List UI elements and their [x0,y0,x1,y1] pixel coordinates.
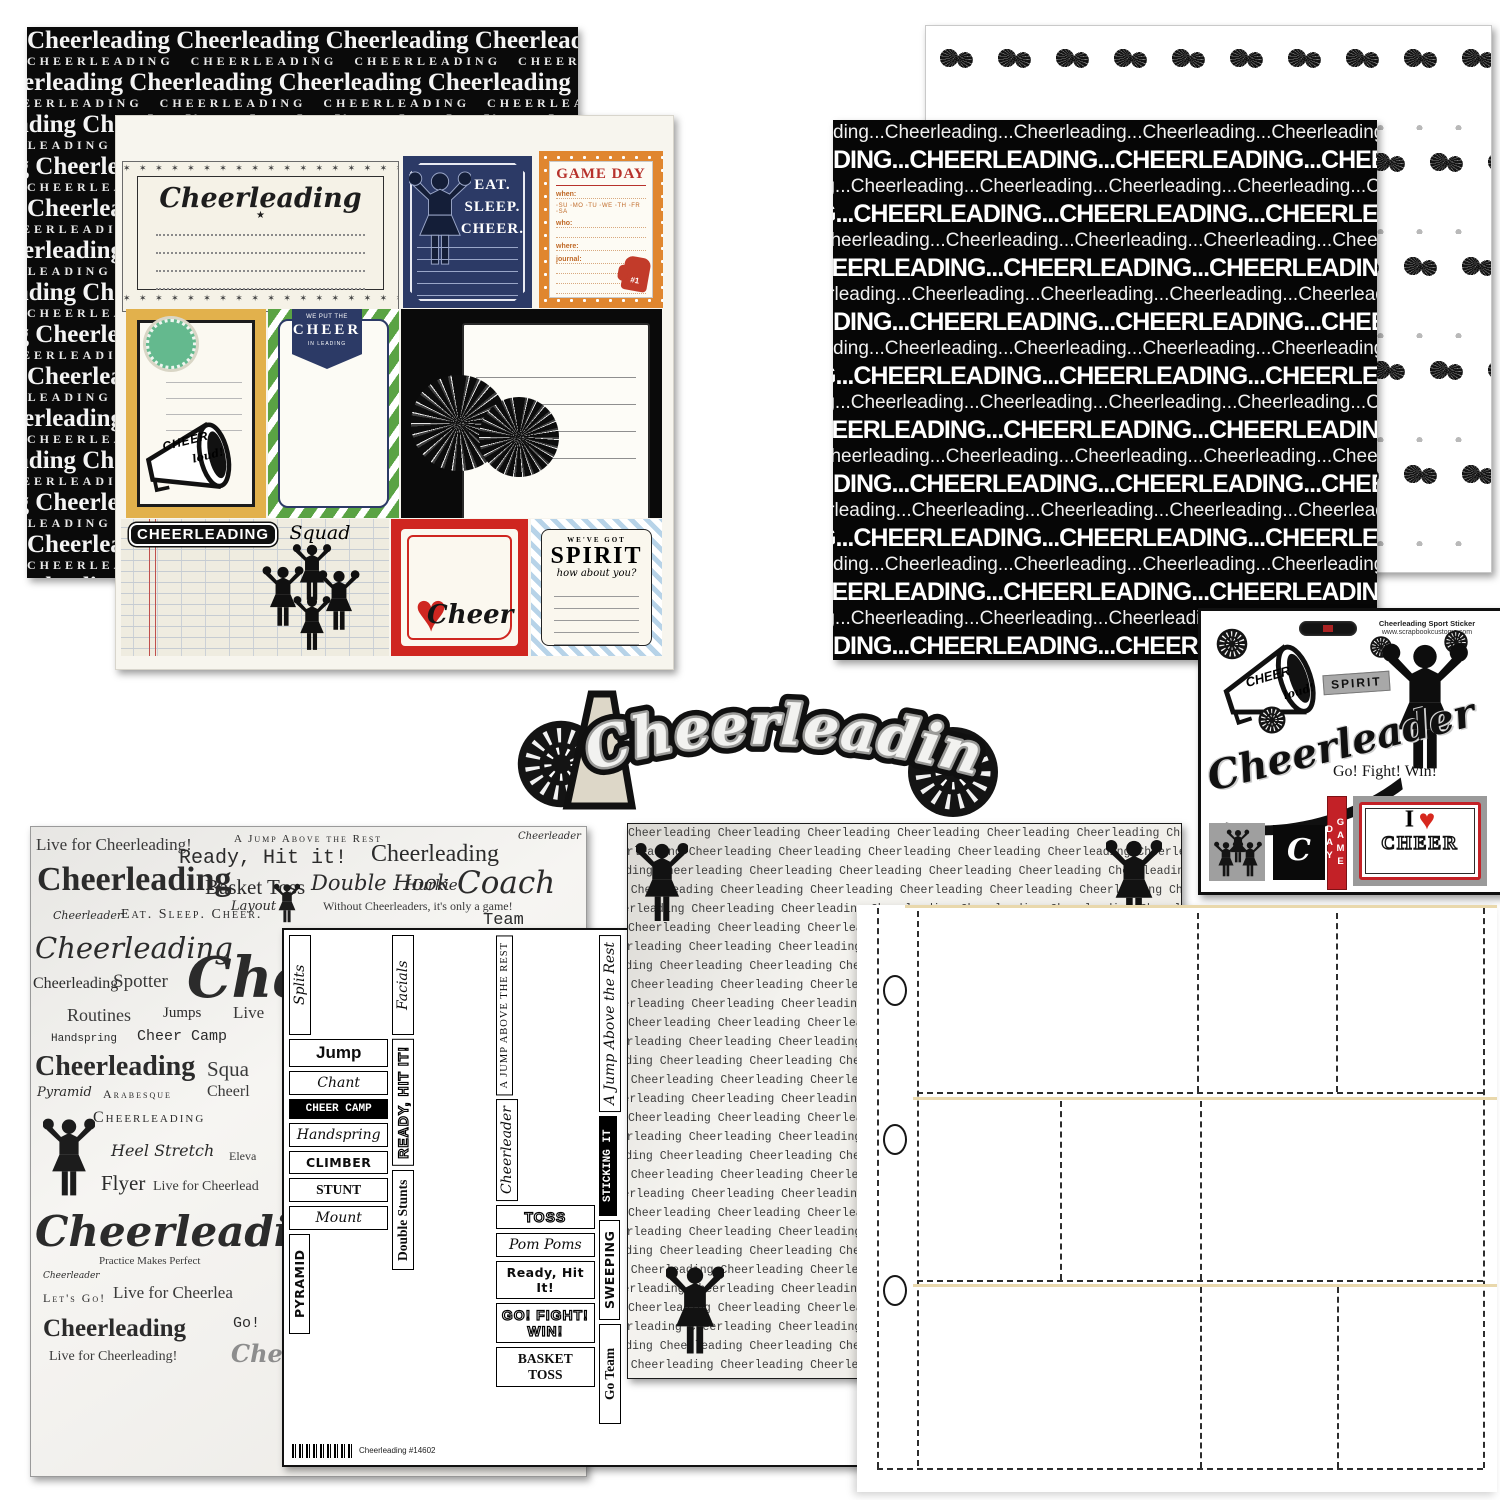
pocket-top-strip [905,905,1497,908]
pompom-pair-icon [1482,142,1492,182]
seal-badge [146,319,196,369]
word-block: Mount [289,1206,388,1230]
collage-word: Cheerleading [93,1109,205,1127]
word-block: PYRAMID [289,1234,310,1334]
i-heart-cheer-sticker: I ♥ CHEER [1353,796,1487,886]
collage-word: Cheerleading [43,1315,186,1343]
banner-top-text: WE PUT THE [292,314,362,320]
card-inner: GAME DAY when: ◦SU ◦MO ◦TU ◦WE ◦TH ◦FR ◦… [549,161,653,298]
pattern-row: ding...Cheerleading...Cheerleading...Che… [833,228,1377,254]
field-when: when: [556,191,646,199]
card-game-day: GAME DAY when: ◦SU ◦MO ◦TU ◦WE ◦TH ◦FR ◦… [539,151,663,308]
pocket-seam [1197,913,1199,1092]
line: SLEEP. [461,196,524,218]
binder-hole [883,1275,907,1306]
card-cheerleading-title: ✶ ✶ ✶ ✶ ✶ ✶ ✶ ✶ ✶ ✶ ✶ ✶ ✶ ✶ ✶ ✶ ✶ ✶ Chee… [122,161,399,312]
collage-word: Eleva [229,1149,256,1164]
card-cheer-loud: CHEER loud! [126,309,266,518]
sticker-title: Cheerleading Sport Sticker [1361,619,1493,628]
scrapbook-kit-collage: Cheerleading Cheerleading Cheerleading C… [0,0,1500,1500]
collage-word: Practice Makes Perfect [99,1255,200,1267]
collage-word: Cheerleader [53,909,122,922]
pompom-icon [479,397,559,477]
pattern-row: DING...CHEERLEADING...CHEERLEADING...CHE… [833,146,1377,174]
pattern-row: ding...Cheerleading...Cheerleading...Che… [833,174,1377,200]
pompom-pair-icon [934,38,978,78]
collage-word: Spotter [113,971,168,993]
paper-journal-cards: ✶ ✶ ✶ ✶ ✶ ✶ ✶ ✶ ✶ ✶ ✶ ✶ ✶ ✶ ✶ ✶ ✶ ✶ Chee… [115,115,674,670]
pompom-pair-icon [1398,246,1442,286]
collage-word: Heel Stretch [111,1141,214,1160]
pompom-pair-icon [1166,38,1210,78]
word-block: Jump [289,1039,388,1067]
pompom-pair-icon [1050,38,1094,78]
pocket-top-strip [913,1097,1497,1100]
word-block: SWEEPING [599,1220,620,1320]
pattern-row: CHEERLEADING CHEERLEADING CHEERLEADING C… [27,54,578,69]
pompom-pair-icon [992,38,1036,78]
pompom-pair-icon [1340,38,1384,78]
card-weve-got-spirit: WE'VE GOT SPIRIT how about you? [531,519,662,656]
journal-lines [417,236,518,296]
game-day-sticker: GAME DAY [1327,796,1347,890]
pattern-row: DING...CHEERLEADING...CHEERLEADING...CHE… [833,308,1377,336]
banner-bottom-text: IN LEADING [292,341,362,347]
word-block: Go Team [599,1324,621,1424]
collage-word: Routines [67,1005,131,1026]
pocket-seam [1060,1101,1062,1280]
word-block: Chant [289,1071,388,1095]
collage-word: Live for Cheerlea [113,1283,233,1303]
cheerleader-icon [43,1117,95,1197]
word-block: Double Stunts [392,1170,414,1270]
card-cheerleading-squad-ledger: CHEERLEADING Squad [121,519,389,656]
collage-word: Cheerleading [37,861,232,899]
collage-word: Jumps [163,1005,201,1022]
word-block: STICKING IT [599,1116,617,1216]
journal-line [156,272,365,290]
pompom-pair-icon [1398,454,1442,494]
pattern-row: Cheerleading Cheerleading Cheerleading C… [27,69,578,96]
field-who: who: [556,220,646,228]
pocket-top-strip [913,1284,1497,1287]
pompom-pair-icon [1456,454,1492,494]
pompom-pair-icon [1424,142,1468,182]
pattern-row: Cheerleading Cheerleading Cheerleading C… [628,824,1181,843]
i-text: I [1405,807,1414,833]
collage-word: Arabesque [103,1087,172,1102]
pattern-row: DING...CHEERLEADING...CHEERLEADING...CHE… [833,416,1377,444]
cheer-text: CHEER [1362,833,1478,855]
journal-line [156,236,365,254]
collage-word: Layout [231,899,276,914]
squad-script-text: Squad [289,522,350,544]
field-where: where: [556,243,646,251]
pompom-pair-icon [1224,38,1268,78]
cheerleader-icon [274,883,300,923]
pompom-pair-icon [1456,246,1492,286]
collage-word: Cheerleading [35,1051,195,1083]
protector-edge-dashed [877,1468,1483,1470]
word-block: Cheerleader [496,1099,518,1201]
cheerleader-icon [636,840,688,924]
pattern-row: DING...CHEERLEADING...CHEERLEADING...CHE… [833,200,1377,228]
collage-word: A Jump Above the Rest [234,833,382,845]
collage-word: Cheerleading [371,841,499,868]
go-fight-win-sticker: Go! Fight! Win! [1333,763,1437,781]
pompom-pair-icon [1482,350,1492,390]
pompom-pair-icon [1108,38,1152,78]
pattern-row: DING...CHEERLEADING...CHEERLEADING...CHE… [833,524,1377,552]
pattern-row: ding...Cheerleading...Cheerleading...Che… [833,444,1377,470]
collage-word: Flyer [101,1171,145,1196]
collage-word: Cheerleader [518,831,581,842]
pompom-pair-icon [1456,38,1492,78]
binder-hole [883,975,907,1006]
foam-finger-icon: #1 [620,255,652,293]
card-inner: ♥ Cheer [401,529,518,646]
pattern-row: DING...CHEERLEADING...CHEERLEADING...CHE… [833,254,1377,282]
cheerleader-icon [666,1264,724,1356]
collage-word: Cheer Camp [137,1028,227,1045]
pompom-pair-icon [1282,38,1326,78]
collage-word: Live for Cheerleading! [36,835,192,855]
pyramid-sticker [1209,823,1265,881]
pattern-row: ding...Cheerleading...Cheerleading...Che… [833,498,1377,524]
journal-lines [554,585,639,645]
card-we-put-the-cheer: WE PUT THE CHEER IN LEADING [268,309,399,518]
word-block: A JUMP ABOVE THE REST [496,935,513,1095]
card-inner-frame: Cheerleading ★ [137,176,384,290]
cheerleader-icon [289,595,335,651]
binder-hole [883,1124,907,1155]
barcode-bars [292,1444,354,1458]
journal-line [156,254,365,272]
cheerleader-icon [1237,841,1263,877]
pocket-seam [1200,1101,1202,1280]
collage-word: Live for Cheerleading! [49,1349,177,1365]
word-block: CLIMBER [289,1151,388,1174]
pattern-row: ding...Cheerleading...Cheerleading...Che… [833,336,1377,362]
barcode-label: Cheerleading #14602 [359,1446,436,1455]
word-block: Pom Poms [496,1233,595,1257]
pompom-pair-icon [1424,350,1468,390]
sticker-sheet: Cheerleading Sport Sticker www.scrapbook… [1198,608,1500,895]
pocket-seam [917,911,919,1466]
squad-main-text: CHEERLEADING [129,523,277,546]
pompom-icon [1257,705,1287,735]
title-diecut-art: Cheerleading Cheerleading [495,664,1000,824]
pocket-seam [1336,913,1338,1092]
pattern-row: ding...Cheerleading...Cheerleading...Che… [833,282,1377,308]
card-eat-sleep-cheer: EAT. SLEEP. CHEER. [403,156,532,308]
paper-black-cheerleading-ellipsis-rows: ding...Cheerleading...Cheerleading...Che… [833,120,1377,660]
repeated-word-rows: ding...Cheerleading...Cheerleading...Che… [833,120,1377,660]
protector-edge-dashed [1483,908,1485,1468]
collage-word: Go! [233,1315,260,1332]
heart-icon: ♥ [1419,804,1436,835]
card-pompom-journal [401,309,662,518]
collage-word: Cheerl [207,1083,250,1101]
collage-word: Pyramid [37,1085,92,1100]
eat-sleep-cheer-text: EAT. SLEEP. CHEER. [461,174,524,240]
collage-word: Cheerleading [33,975,118,993]
pattern-row: DING...CHEERLEADING...CHEERLEADING...CHE… [833,470,1377,498]
card-inner: WE'VE GOT SPIRIT how about you? [541,529,652,646]
pompom-row [926,38,1491,86]
journal-line [556,228,646,238]
spirit-main-text: SPIRIT [542,544,651,568]
word-block: A Jump Above the Rest [599,935,621,1112]
pattern-row: ding...Cheerleading...Cheerleading...Che… [833,120,1377,146]
collage-word: Live for Cheerlead [153,1179,259,1195]
word-block: Splits [289,935,311,1035]
collage-word: Handspring [51,1033,117,1045]
card-cheer-heart: ♥ Cheer [391,519,528,656]
word-block: STUNT [289,1178,388,1202]
pattern-row: CHEERLEADING CHEERLEADING CHEERLEADING C… [27,96,578,111]
collage-word: Let's Go! [43,1291,106,1306]
pocket-seam [1200,1287,1202,1468]
pattern-row: Cheerleading Cheerleading Cheerleading C… [27,27,578,54]
barcode: Cheerleading #14602 [292,1442,436,1460]
word-block: READY, HIT IT! [392,1039,414,1166]
word-block: Ready, Hit It! [496,1261,595,1299]
game-day-title: GAME DAY [556,166,646,186]
cheer-script-text: Cheer [427,600,513,630]
pompom-pair-icon [1398,38,1442,78]
banner-mid-text: CHEER [292,322,362,339]
pattern-row: DING...CHEERLEADING...CHEERLEADING...CHE… [833,578,1377,606]
collage-word: Squa [207,1057,249,1082]
word-block: Handspring [289,1123,388,1147]
card-inner: CHEER loud! [137,320,255,507]
page-protector [857,905,1497,1492]
collage-word: Coach [457,865,555,901]
pattern-row: Cheerleading Cheerleading Cheerleading C… [628,881,1181,900]
pattern-row: Cheerleading Cheerleading Cheerleading C… [628,843,1181,862]
word-block: CHEER CAMP [289,1099,388,1119]
word-block: BASKET TOSS [496,1347,595,1387]
word-block: Facials [392,935,414,1035]
pocket-seam [917,1280,1483,1282]
collage-word: Live [233,1003,264,1023]
pocket-seam [1337,1287,1339,1468]
pattern-row: ding...Cheerleading...Cheerleading...Che… [833,552,1377,578]
pocket-seam [917,1092,1483,1094]
cheerleading-title-diecut: Cheerleading Cheerleading [495,664,1000,824]
ornament-row: ✶ ✶ ✶ ✶ ✶ ✶ ✶ ✶ ✶ ✶ ✶ ✶ ✶ ✶ ✶ ✶ ✶ ✶ [123,292,398,304]
line: EAT. [461,174,524,196]
protector-edge-dashed [877,908,879,1468]
collage-word: Cheerleader [43,1271,100,1281]
collage-word: Hurkie [405,876,458,894]
spirit-sub-text: how about you? [542,568,651,579]
word-block: GO! FIGHT! WIN! [496,1303,595,1343]
word-block: TOSS [496,1205,595,1229]
pattern-row: DING...CHEERLEADING...CHEERLEADING...CHE… [833,362,1377,390]
pattern-row: Cheerleading Cheerleading Cheerleading C… [628,862,1181,881]
ornament-row: ✶ ✶ ✶ ✶ ✶ ✶ ✶ ✶ ✶ ✶ ✶ ✶ ✶ ✶ ✶ ✶ ✶ ✶ [123,162,398,174]
c-glyph-sticker: C [1273,825,1325,880]
pattern-row: ding...Cheerleading...Cheerleading...Che… [833,390,1377,416]
field-days: ◦SU ◦MO ◦TU ◦WE ◦TH ◦FR ◦SA [556,203,646,215]
